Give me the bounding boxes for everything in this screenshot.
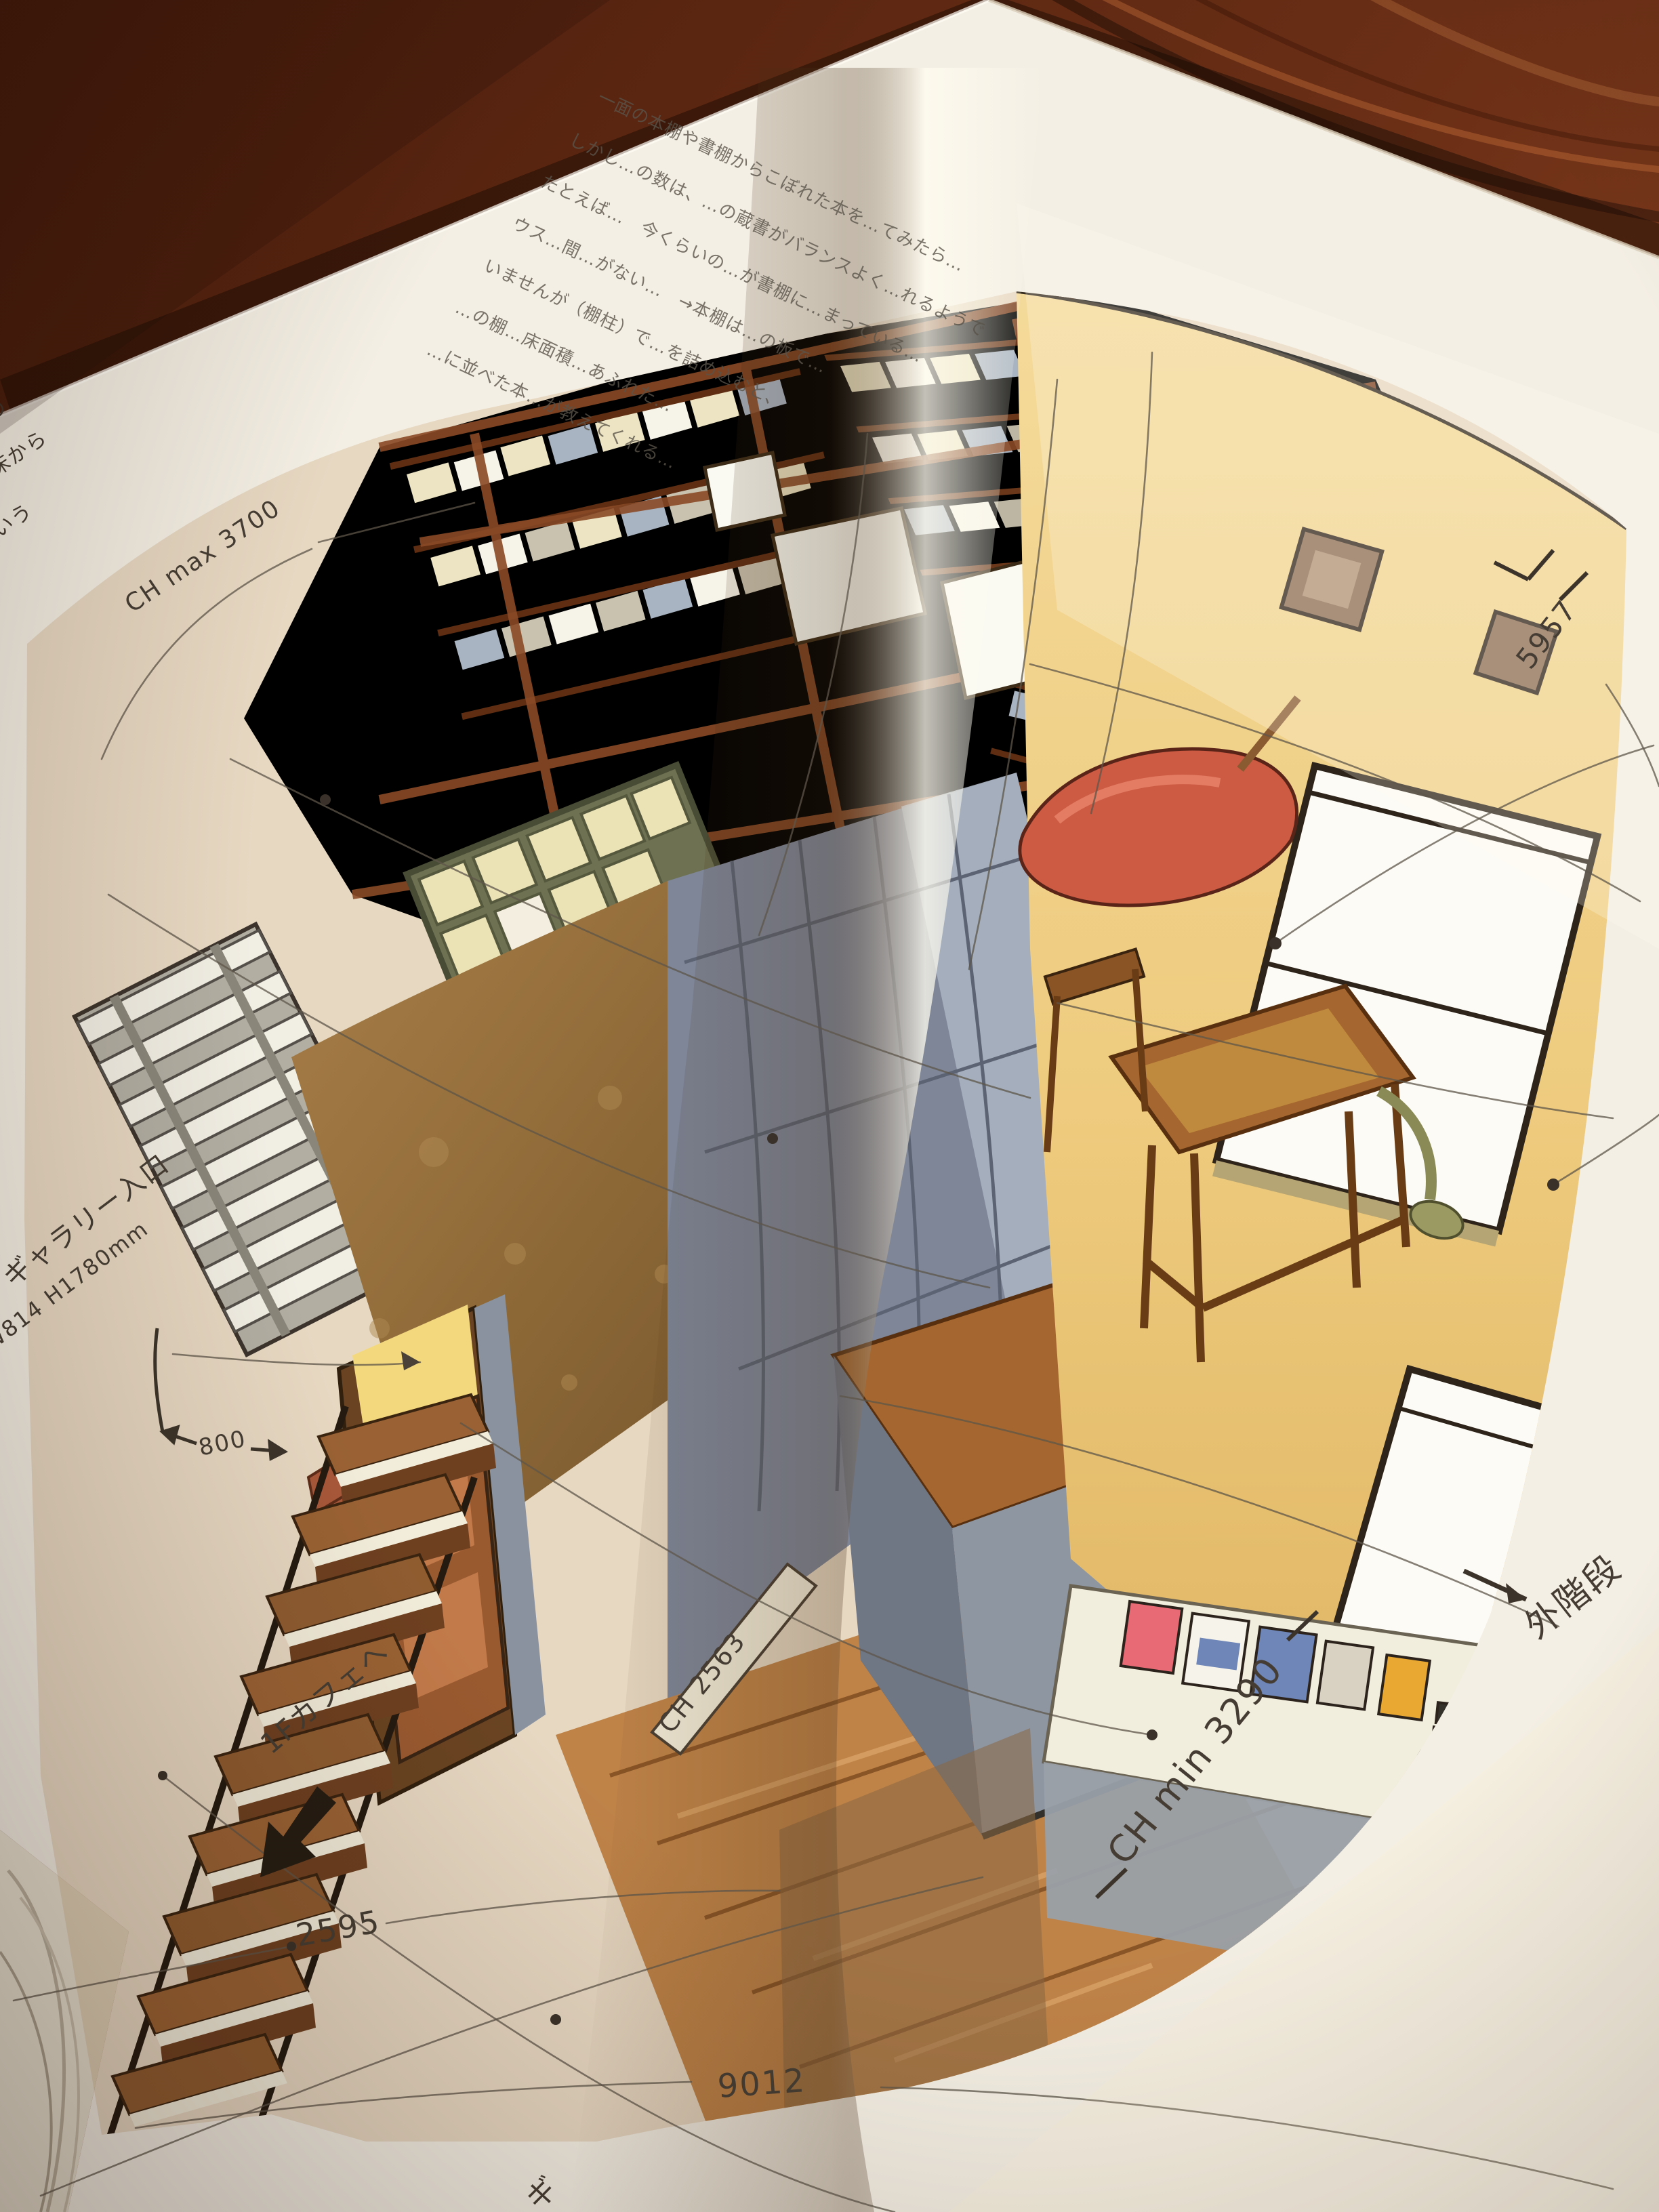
scene-svg: 一面の本棚や書棚からこぼれた本を…てみたら… しかし…の数は、…の蔵書がバランス… (0, 0, 1659, 2212)
photo-of-open-book: 一面の本棚や書棚からこぼれた本を…てみたら… しかし…の数は、…の蔵書がバランス… (0, 0, 1659, 2212)
